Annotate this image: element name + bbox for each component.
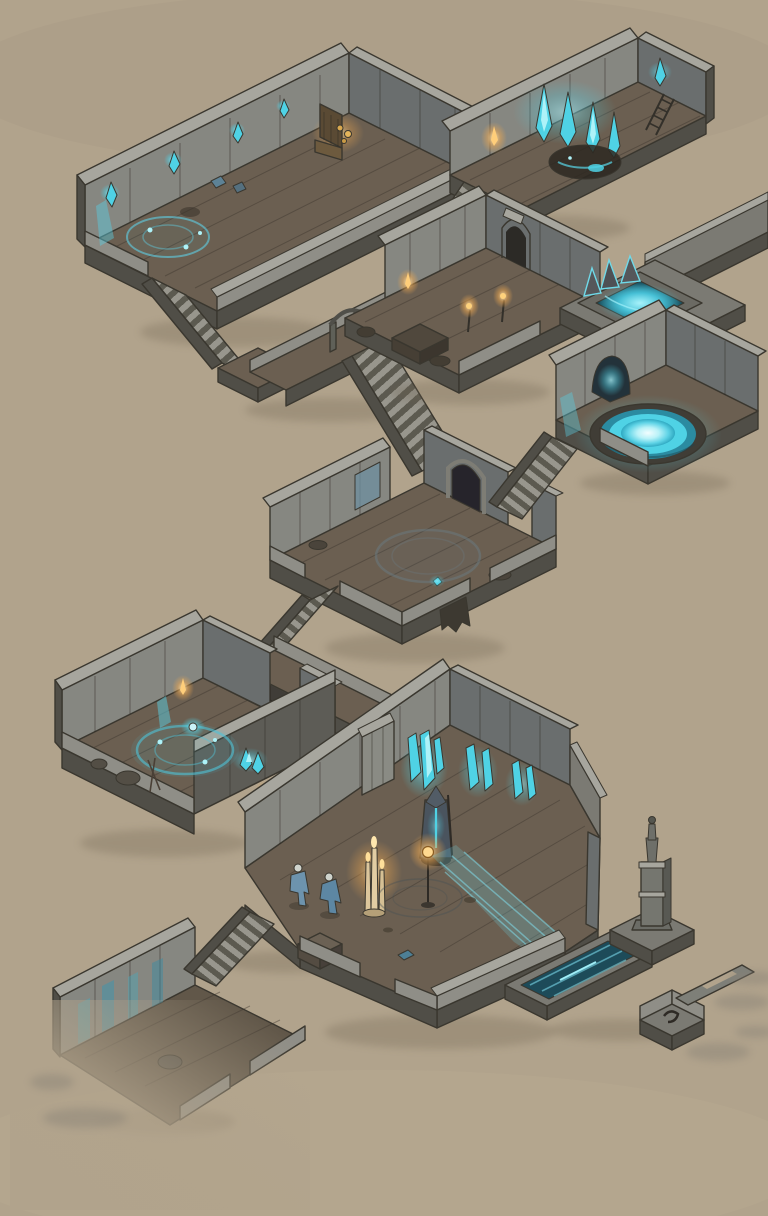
treasure-glint [342,139,347,144]
stone-debris [383,928,393,933]
sketch-fade-overlay [10,1000,310,1210]
treasure-glint [337,125,343,131]
faded-floor-circle [376,530,480,582]
debris [309,541,327,550]
clutter [430,356,450,366]
boulder [91,759,107,769]
treasure-glint [345,131,352,138]
fade-streak [30,1074,74,1090]
glow-orb [181,717,205,737]
wall-torch [481,122,507,154]
floor-stain [180,207,200,217]
boulder [116,771,140,785]
wall-torch [172,675,194,701]
stone-debris [464,897,476,903]
wall-east-low [586,832,600,930]
floor-ritual-circle [127,217,209,257]
wall-torch [397,269,419,295]
clutter [357,327,375,337]
fade-streak [686,1043,750,1061]
dungeon-map-illustration [0,0,768,1216]
map-canvas [0,0,768,1216]
dark-floor-sigil [549,145,621,179]
fade-streak [714,994,768,1010]
fade-streak [43,1108,127,1128]
